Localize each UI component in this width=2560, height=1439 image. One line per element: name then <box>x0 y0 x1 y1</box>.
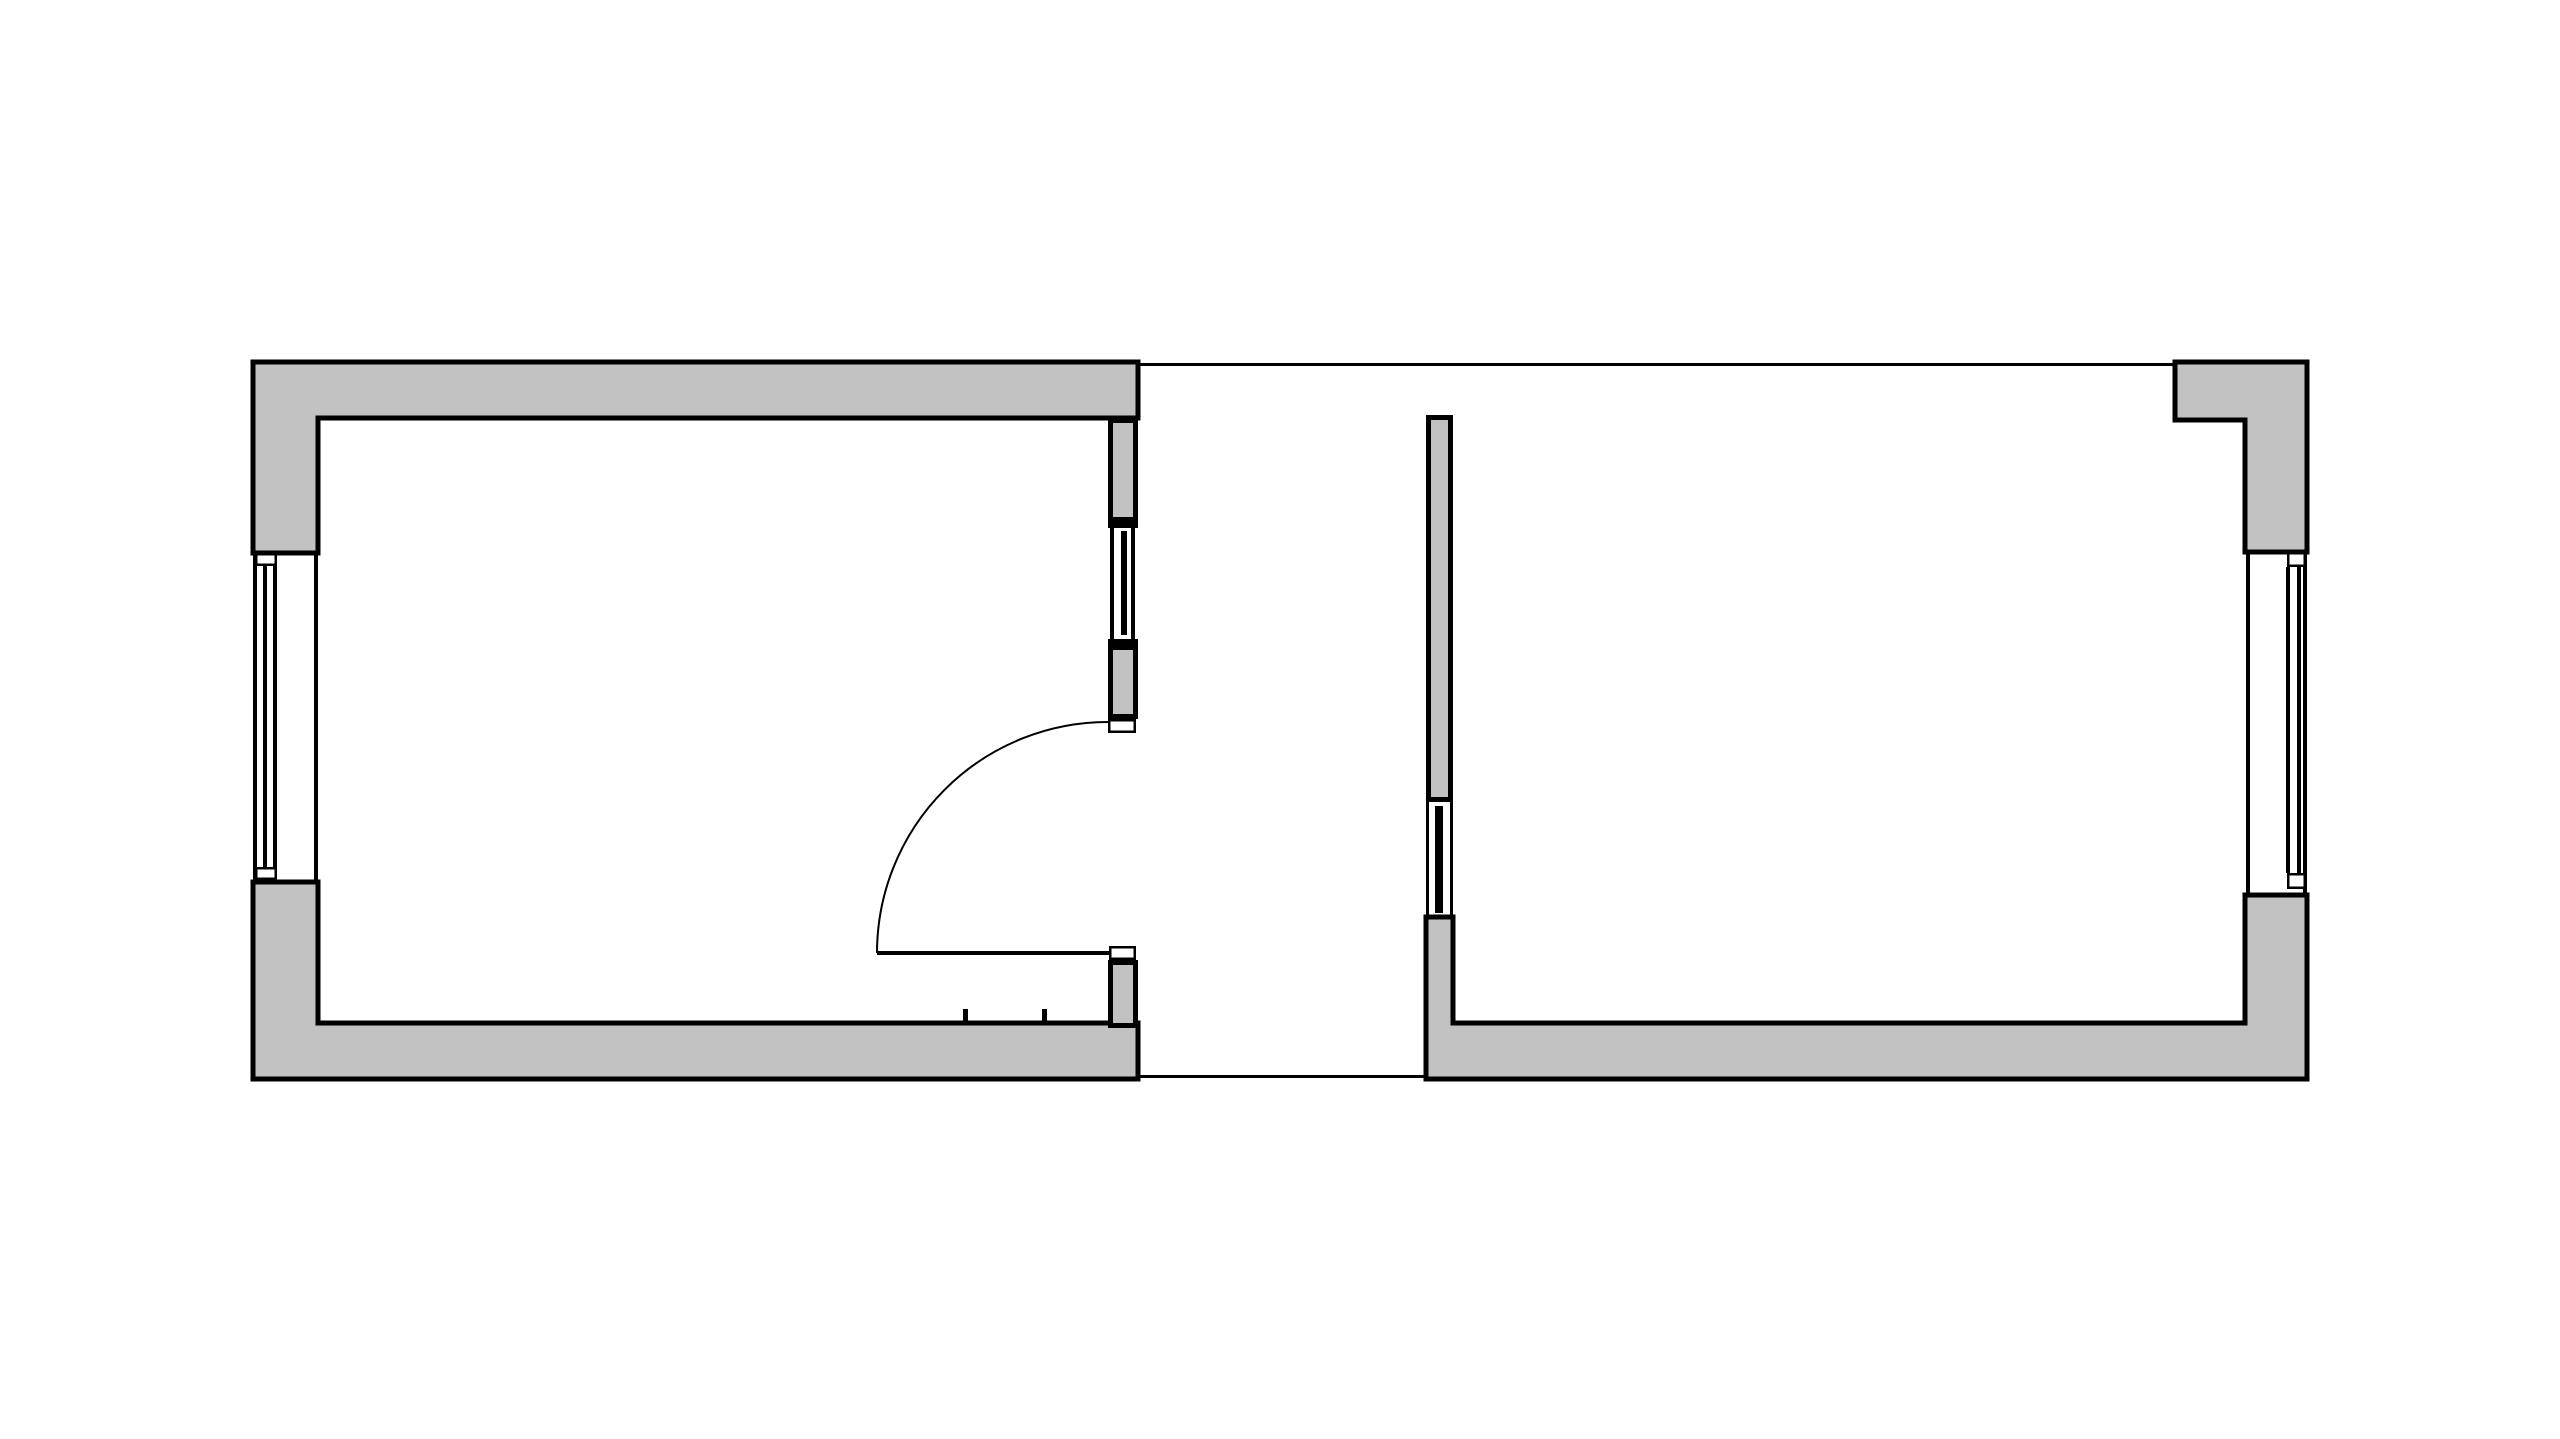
right-room-bottom-and-side-walls <box>1426 895 2307 1079</box>
left-wall-window-inner-line <box>314 553 318 880</box>
left-wall-window-outer-line <box>253 553 257 880</box>
floor-plan-drawing <box>0 0 2560 1439</box>
right-wall-exterior-window-outer-line <box>2303 552 2307 895</box>
left-room-top-and-left-wall <box>253 362 1138 553</box>
left-wall-window-frame-box-top <box>256 554 276 565</box>
door-leaf <box>877 951 1110 955</box>
threshold-tick-left <box>963 1009 968 1025</box>
left-wall-window-glazing-2 <box>273 566 277 867</box>
reference-line-top <box>1138 363 2175 366</box>
partition-panel-frame-right <box>1450 802 1453 917</box>
right-wall-window-glazing <box>1121 531 1127 635</box>
left-room-right-wall-lower <box>1111 963 1136 1026</box>
left-wall-window-glazing-1 <box>263 566 267 867</box>
door-swing-arc <box>877 722 1108 953</box>
floor-plan-canvas <box>0 0 2560 1439</box>
right-wall-exterior-window-glazing-1 <box>2286 567 2290 873</box>
left-room-right-wall-upper <box>1111 421 1136 520</box>
right-room-partition-wall-upper <box>1429 418 1451 800</box>
right-wall-exterior-window-frame-box-bottom <box>2288 874 2305 888</box>
left-room-bottom-and-left-wall <box>253 882 1138 1079</box>
threshold-tick-right <box>1042 1009 1047 1025</box>
right-wall-exterior-window-inner-line <box>2246 552 2250 895</box>
partition-panel-frame-left <box>1426 802 1429 917</box>
right-wall-exterior-window-frame-box-top <box>2288 553 2305 566</box>
right-wall-window-cap-bottom <box>1108 639 1138 645</box>
right-wall-window-frame-outer <box>1131 527 1135 639</box>
right-wall-window-frame-inner <box>1110 527 1114 639</box>
left-room-right-wall-mid <box>1111 648 1136 717</box>
right-room-top-right-corner-wall <box>2175 362 2307 552</box>
reference-line-bottom <box>1138 1075 1426 1078</box>
door-jamb-upper <box>1109 720 1135 732</box>
right-wall-exterior-window-glazing-2 <box>2297 567 2301 873</box>
partition-panel-glazing <box>1435 806 1443 913</box>
floor-plan-svg <box>0 0 2560 1439</box>
left-wall-window-frame-box-bottom <box>256 868 276 879</box>
door-jamb-lower <box>1110 947 1135 959</box>
